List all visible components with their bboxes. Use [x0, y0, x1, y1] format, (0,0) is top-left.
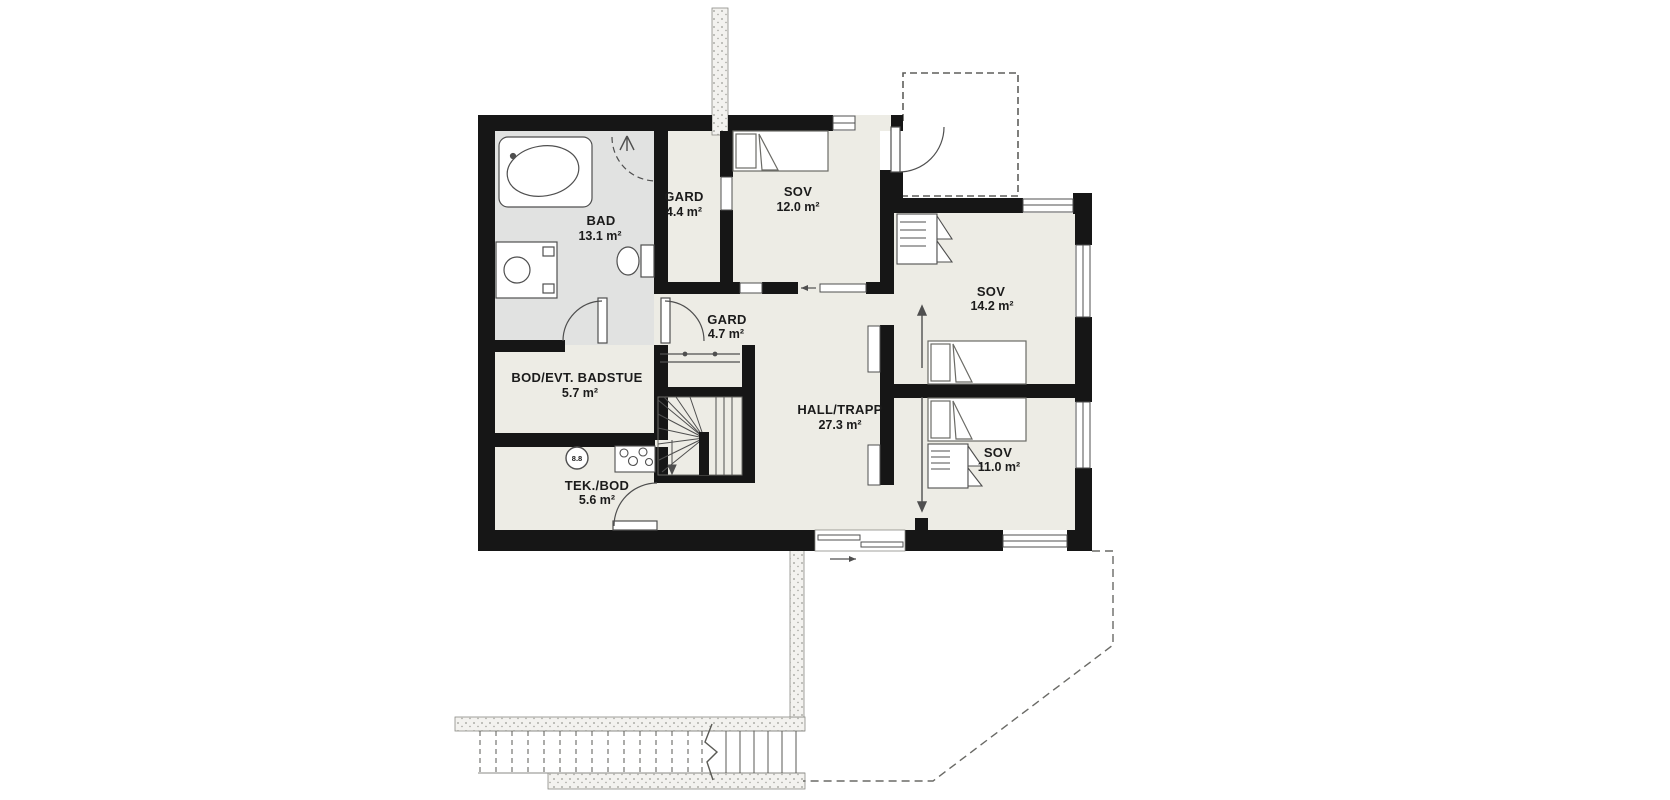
- bed-sov11-icon: [928, 398, 1026, 441]
- room-label-sov11: SOV: [984, 445, 1012, 460]
- room-area-hall: 27.3 m²: [818, 418, 861, 432]
- wall-stair-top: [658, 387, 742, 397]
- wall-gard44-sov12-b: [720, 210, 733, 282]
- wall-sov12-sov14: [880, 170, 894, 294]
- wall-top-b: [728, 115, 833, 131]
- floor-plan-page: 8.8 BAD 13.1 m² GARD 4.4 m² SOV 12.0 m² …: [0, 0, 1670, 800]
- wall-gard44-sov12-a: [720, 131, 733, 177]
- room-label-gard47: GARD: [707, 312, 746, 327]
- room-label-gard44: GARD: [664, 189, 703, 204]
- wall-right-b: [1075, 317, 1092, 402]
- terrace-edge-upper: [455, 717, 805, 731]
- room-area-badstue: 5.7 m²: [562, 386, 598, 400]
- retaining-wall-top: [712, 8, 728, 135]
- room-area-gard44: 4.4 m²: [666, 205, 702, 219]
- stove-icon: [615, 446, 655, 472]
- room-label-sov14: SOV: [977, 284, 1005, 299]
- floor-plan-drawing: 8.8 BAD 13.1 m² GARD 4.4 m² SOV 12.0 m² …: [0, 0, 1670, 800]
- wall-right-a: [1075, 193, 1092, 245]
- wall-bath-bottom: [494, 340, 565, 352]
- marker-label: 8.8: [572, 454, 582, 463]
- terrace-edge-right: [790, 548, 804, 717]
- room-area-tek: 5.6 m²: [579, 493, 615, 507]
- wall-left: [478, 115, 495, 551]
- room-area-sov14: 14.2 m²: [970, 299, 1013, 313]
- wall-gard47-right: [742, 345, 755, 478]
- room-area-sov11: 11.0 m²: [978, 460, 1020, 474]
- toilet-icon: [641, 245, 654, 277]
- room-area-bad: 13.1 m²: [578, 229, 621, 243]
- sliding-panel-sov14: [868, 326, 880, 372]
- wall-sov14-sov11: [894, 384, 1075, 398]
- wall-bottom-a: [478, 530, 815, 551]
- wall-sov14-top: [894, 198, 1023, 213]
- room-area-gard47: 4.7 m²: [708, 327, 744, 341]
- room-area-sov12: 12.0 m²: [776, 200, 819, 214]
- room-label-hall: HALL/TRAPP: [797, 402, 882, 417]
- bed-sov14-icon: [928, 341, 1026, 384]
- stair-newel: [699, 432, 709, 475]
- wall-badstue-tek: [494, 433, 655, 447]
- stair-bottom-edge: [657, 475, 755, 483]
- sill-sov12: [740, 283, 762, 293]
- sliding-panel-sov11: [868, 445, 880, 485]
- wall-top-a: [478, 115, 712, 131]
- room-label-sov12: SOV: [784, 184, 812, 199]
- room-label-badstue: BOD/EVT. BADSTUE: [511, 370, 642, 385]
- terrace-edge-lower: [548, 773, 805, 789]
- bed-sov12-icon: [733, 131, 828, 171]
- wall-bottom-c: [1067, 530, 1092, 551]
- room-label-tek: TEK./BOD: [565, 478, 630, 493]
- doorway-gard44: [721, 177, 732, 210]
- room-label-bad: BAD: [586, 213, 615, 228]
